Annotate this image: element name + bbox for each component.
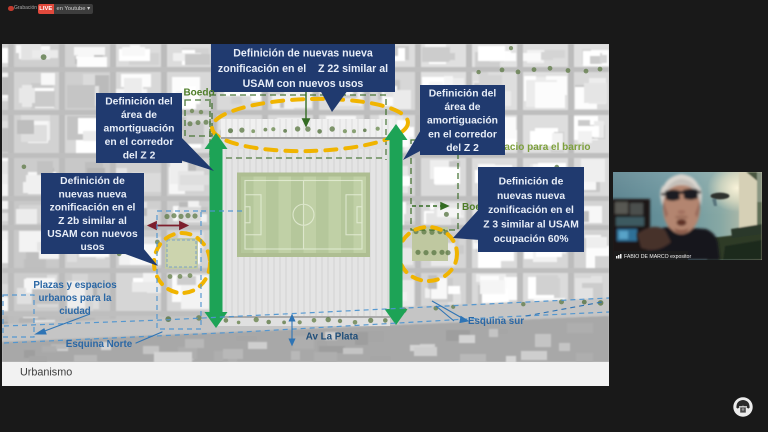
svg-text:Urbanismo: Urbanismo (20, 367, 72, 379)
svg-text:ciudad: ciudad (59, 306, 91, 317)
svg-text:nuevas nueva: nuevas nueva (58, 189, 126, 200)
svg-text:Z 2b similar al: Z 2b similar al (58, 216, 127, 227)
svg-text:USAM con nuevos usos: USAM con nuevos usos (243, 78, 364, 90)
svg-text:zonificación en el: zonificación en el (50, 203, 136, 214)
svg-text:amortiguación: amortiguación (104, 124, 175, 135)
svg-text:en el corredor: en el corredor (105, 137, 174, 148)
svg-text:Definición de: Definición de (60, 176, 125, 187)
svg-text:Boedo: Boedo (183, 88, 214, 99)
svg-text:Definición de nuevas nueva: Definición de nuevas nueva (233, 47, 373, 59)
svg-text:ocupación 60%: ocupación 60% (494, 234, 569, 245)
svg-text:Plazas y espacios: Plazas y espacios (33, 280, 117, 291)
svg-text:amortiguación: amortiguación (427, 116, 498, 127)
svg-text:área de: área de (444, 102, 480, 113)
svg-text:USAM con nuevos: USAM con nuevos (47, 229, 138, 240)
svg-text:zonificación en el: zonificación en el (488, 205, 574, 216)
svg-text:Esquina Norte: Esquina Norte (66, 339, 133, 350)
svg-text:usos: usos (80, 242, 104, 253)
svg-text:Z 3 similar al USAM: Z 3 similar al USAM (483, 220, 579, 231)
svg-text:Definición del: Definición del (429, 89, 497, 100)
svg-text:del Z 2: del Z 2 (123, 151, 156, 162)
svg-text:Definición del: Definición del (105, 97, 173, 108)
svg-text:Definición de: Definición de (499, 176, 564, 187)
svg-text:en el corredor: en el corredor (428, 129, 497, 140)
svg-text:nuevas nueva: nuevas nueva (497, 191, 565, 202)
svg-text:área de: área de (121, 110, 157, 121)
svg-text:del Z 2: del Z 2 (446, 143, 479, 154)
svg-text:zonificación en el Z 22 sim: zonificación en el Z 22 similar al (218, 63, 388, 75)
svg-text:urbanos para la: urbanos para la (39, 293, 113, 304)
svg-text:Av La Plata: Av La Plata (306, 332, 359, 343)
svg-text:Esquina sur: Esquina sur (468, 316, 524, 327)
svg-text:FABIO DE MARCO expositor: FABIO DE MARCO expositor (624, 254, 691, 260)
